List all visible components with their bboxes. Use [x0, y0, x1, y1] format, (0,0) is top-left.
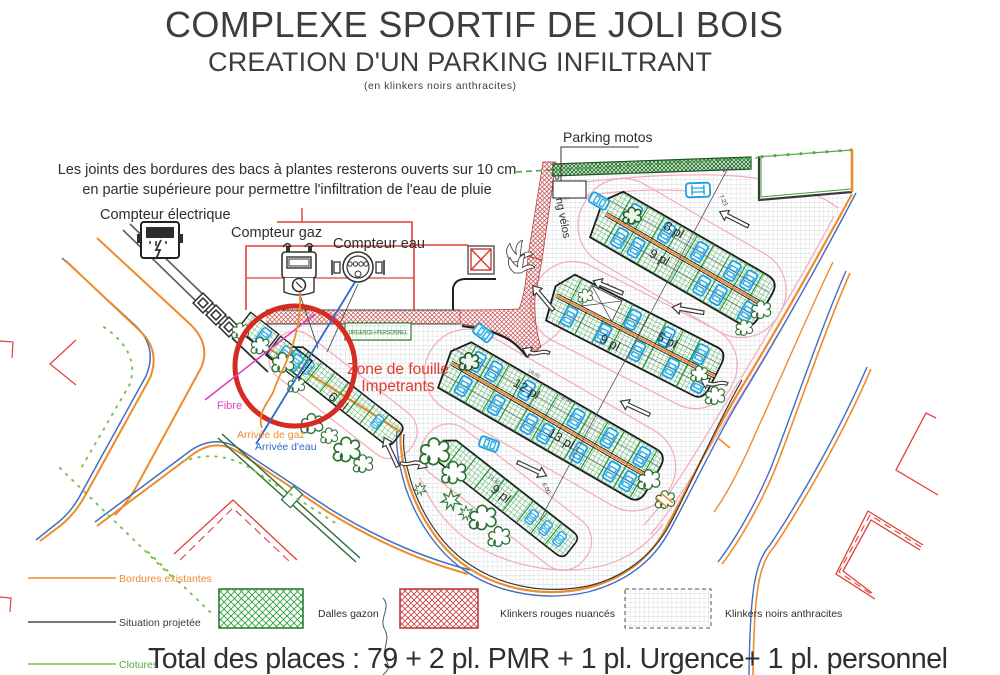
svg-text:Fibre: Fibre: [217, 400, 242, 412]
svg-text:Klinkers noirs anthracites: Klinkers noirs anthracites: [725, 608, 842, 620]
svg-text:Arrivée d'eau: Arrivée d'eau: [255, 441, 317, 453]
svg-text:Parking motos: Parking motos: [563, 129, 652, 145]
svg-text:Klinkers rouges nuancés: Klinkers rouges nuancés: [500, 608, 615, 620]
svg-text:Total des places : 79 + 2 pl.: Total des places : 79 + 2 pl. PMR + 1 pl…: [148, 643, 948, 675]
svg-text:Compteur électrique: Compteur électrique: [100, 207, 231, 223]
svg-text:COMPLEXE SPORTIF DE JOLI BOIS: COMPLEXE SPORTIF DE JOLI BOIS: [165, 4, 783, 45]
svg-text:Compteur eau: Compteur eau: [333, 236, 425, 252]
svg-text:en partie supérieure pour perm: en partie supérieure pour permettre l'in…: [82, 182, 491, 198]
svg-text:Situation projetée: Situation projetée: [119, 617, 201, 629]
svg-text:Arrivée de gaz: Arrivée de gaz: [237, 429, 305, 441]
svg-text:Les joints des bordures des ba: Les joints des bordures des bacs à plant…: [58, 162, 517, 178]
svg-text:URGENCE+PERSONNEL: URGENCE+PERSONNEL: [349, 330, 408, 336]
svg-text:Zone de fouille: Zone de fouille: [347, 361, 449, 378]
svg-text:Bordures existantes: Bordures existantes: [119, 573, 212, 585]
svg-text:Dalles gazon: Dalles gazon: [318, 608, 379, 620]
svg-text:Compteur gaz: Compteur gaz: [231, 225, 322, 241]
svg-text:Impetrants: Impetrants: [361, 378, 434, 395]
svg-text:(en klinkers noirs anthracites: (en klinkers noirs anthracites): [364, 80, 516, 92]
svg-text:CREATION D'UN PARKING INFILTRA: CREATION D'UN PARKING INFILTRANT: [208, 47, 712, 77]
